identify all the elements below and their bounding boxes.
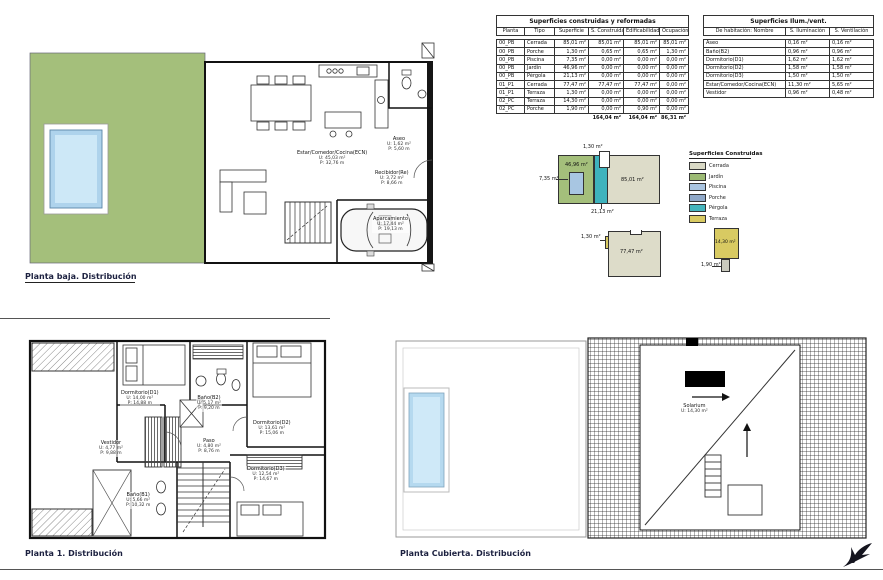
- area-label-cerrada: 77,47 m²: [620, 249, 643, 255]
- table-superficies-ilum-vent: Superficies Ilum./vent. De habitación: N…: [703, 15, 873, 98]
- leader-line: [600, 240, 605, 241]
- table-row: Estar/Comedor/Cocina(ECN) 11,30 m² 5,65 …: [704, 81, 874, 89]
- table-superficies-construidas: Superficies construidas y reformadas Pla…: [496, 15, 689, 121]
- ground-plan-title: Planta baja. Distribución: [25, 272, 135, 283]
- divider-line: [0, 318, 330, 319]
- dining-table: [251, 76, 311, 130]
- legend-item: Piscina: [689, 183, 751, 191]
- table-row: Dormitorio(D2) 1,58 m² 1,58 m²: [704, 64, 874, 72]
- bed-d2: [253, 343, 311, 397]
- legend-label: Jardín: [709, 174, 723, 180]
- terraza-area: [605, 236, 609, 249]
- piscina-area: [569, 172, 584, 195]
- table-row: Baño(B2) 0,96 m² 0,96 m²: [704, 48, 874, 56]
- legend-item: Pérgola: [689, 204, 751, 212]
- room-label: Aseo U: 1,62 m² P: 5,60 m: [386, 136, 412, 153]
- leader-line: [712, 266, 721, 267]
- table-row: 00_PB Pérgola 21,13 m² 0,00 m² 0,00 m² 0…: [497, 72, 689, 80]
- table-row: 02_PC Porche 1,90 m² 0,00 m² 0,90 m² 0,0…: [497, 105, 689, 113]
- bed-d3: [237, 502, 303, 536]
- room-label: Baño(B1) U: 5,66 m² P: 10,32 m: [125, 492, 151, 509]
- porche-area: [721, 259, 730, 272]
- leader-line: [556, 179, 568, 180]
- first-floor-plan-drawing: [25, 337, 330, 542]
- room-label: Aparcamiento U: 17,44 m² P: 19,13 m: [372, 216, 409, 233]
- porche-area: [599, 151, 610, 168]
- north-arrow-icon: [840, 541, 876, 569]
- legend-swatch: [689, 162, 706, 170]
- room-label: Recibidor(Re) U: 3,72 m² P: 8,66 m: [374, 170, 410, 187]
- table-body: Aseo 0,16 m² 0,16 m² Baño(B2) 0,96 m² 0,…: [704, 39, 874, 97]
- architectural-sheet: Estar/Comedor/Cocina(ECN) U: 45,03 m² P:…: [0, 0, 883, 580]
- room-label: Dormitorio(D2) U: 13,61 m² P: 15,06 m: [252, 420, 292, 437]
- wardrobe: [145, 417, 162, 467]
- balcony-hatch: [32, 509, 92, 536]
- legend-swatch: [689, 173, 706, 181]
- legend-superficies: Superficies Construidas Cerrada Jardín P…: [689, 151, 751, 225]
- col-header: S. Ventilación: [830, 27, 874, 35]
- legend-item: Porche: [689, 194, 751, 202]
- table-row: 00_PB Jardín 46,96 m² 0,00 m² 0,00 m² 0,…: [497, 64, 689, 72]
- legend-label: Pérgola: [709, 205, 728, 211]
- area-label-porche: 1,90 m²: [701, 262, 721, 268]
- table-row: Aseo 0,16 m² 0,16 m²: [704, 39, 874, 47]
- legend-label: Porche: [709, 195, 726, 201]
- legend-swatch: [689, 194, 706, 202]
- col-header: Superficie: [555, 27, 589, 35]
- legend-label: Terraza: [709, 216, 727, 222]
- room-label: Solarium U: 14,30 m²: [680, 403, 709, 414]
- room-label: Baño(B2) U: 5,17 m² P: 9,20 m: [196, 395, 222, 412]
- sheet-frame-line: [0, 569, 883, 570]
- first-plan-title: Planta 1. Distribución: [25, 549, 123, 558]
- room-label: Dormitorio(D1) U: 14,00 m² P: 14,88 m: [120, 390, 160, 407]
- legend-title: Superficies Construidas: [689, 151, 751, 159]
- table-row: Dormitorio(D1) 1,62 m² 1,62 m²: [704, 56, 874, 64]
- pool: [404, 388, 449, 492]
- roof-plan-drawing: [390, 335, 872, 542]
- legend-swatch: [689, 204, 706, 212]
- table-row: 02_PC Terraza 14,30 m² 0,00 m² 0,00 m² 0…: [497, 97, 689, 105]
- balcony-hatch: [32, 343, 114, 371]
- bed-d1: [123, 345, 185, 385]
- wardrobe: [164, 417, 181, 467]
- table-row: 01_P1 Cerrada 77,47 m² 77,47 m² 77,47 m²…: [497, 81, 689, 89]
- room-label: Paso U: 4,80 m² P: 8,76 m: [196, 438, 222, 455]
- area-label-terraza: 1,30 m²: [581, 234, 601, 240]
- legend-label: Cerrada: [709, 163, 729, 169]
- table-row: 00_PB Cerrada 85,01 m² 85,01 m² 85,01 m²…: [497, 39, 689, 47]
- table-row: Vestidor 0,96 m² 0,48 m²: [704, 89, 874, 97]
- legend-item: Jardín: [689, 173, 751, 181]
- col-header: De habitación: Nombre: [704, 27, 786, 35]
- room-label: Estar/Comedor/Cocina(ECN) U: 45,03 m² P:…: [296, 150, 368, 167]
- legend-swatch: [689, 183, 706, 191]
- col-header: Edificabilidad: [624, 27, 660, 35]
- col-header: Ocupación: [660, 27, 689, 35]
- legend-items: Cerrada Jardín Piscina Porche: [689, 162, 751, 223]
- porche-notch: [630, 230, 642, 235]
- party-wall: [427, 62, 433, 263]
- room-label: Dormitorio(D3) U: 12,54 m² P: 14,67 m: [246, 466, 286, 483]
- table-row: Dormitorio(D3) 1,50 m² 1,50 m²: [704, 72, 874, 80]
- col-header: S. Iluminación: [786, 27, 830, 35]
- col-header: S. Construida: [589, 27, 624, 35]
- table-title: Superficies Ilum./vent.: [704, 16, 874, 28]
- table-row: 00_PB Porche 1,30 m² 0,65 m² 0,65 m² 1,3…: [497, 48, 689, 56]
- legend-item: Terraza: [689, 215, 751, 223]
- area-label-terraza: 14,30 m²: [715, 240, 736, 245]
- table-row: 01_P1 Terraza 1,30 m² 0,00 m² 0,00 m² 0,…: [497, 89, 689, 97]
- pool: [44, 124, 108, 214]
- table-body: 00_PB Cerrada 85,01 m² 85,01 m² 85,01 m²…: [497, 39, 689, 113]
- col-header: Planta: [497, 27, 525, 35]
- solarium: [640, 338, 800, 530]
- legend-swatch: [689, 215, 706, 223]
- area-label-porche: 1,30 m²: [583, 144, 603, 150]
- col-header: Tipo: [525, 27, 555, 35]
- roof-plan-title: Planta Cubierta. Distribución: [400, 549, 531, 558]
- area-label-cerrada: 85,01 m²: [621, 177, 644, 183]
- table-row: 00_PB Piscina 7,35 m² 0,00 m² 0,00 m² 0,…: [497, 56, 689, 64]
- legend-label: Piscina: [709, 184, 726, 190]
- construidas-totals: 164,04 m² 164,04 m² 86,31 m²: [496, 115, 689, 121]
- area-label-pergola: 21,13 m²: [591, 209, 614, 215]
- table-title: Superficies construidas y reformadas: [497, 16, 689, 28]
- room-label: Vestidor U: 4,77 m² P: 9,88 m: [98, 440, 124, 457]
- legend-item: Cerrada: [689, 162, 751, 170]
- area-label-jardin: 46,96 m²: [565, 162, 588, 168]
- ground-floor-plan-drawing: [23, 40, 435, 272]
